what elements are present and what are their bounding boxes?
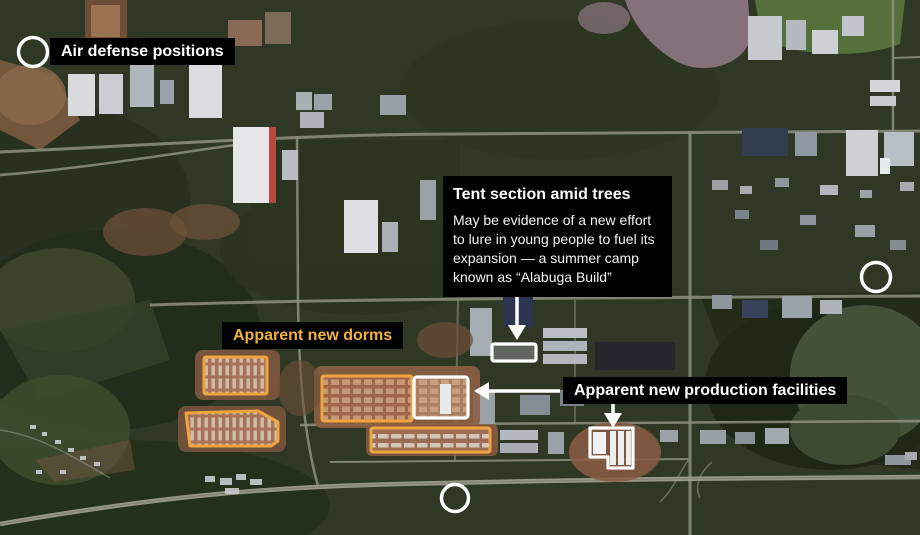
- dorm-highlight-4: [371, 428, 490, 452]
- dorm-highlight-white: [414, 377, 468, 418]
- tent-section-title: Tent section amid trees: [453, 184, 662, 205]
- production-label: Apparent new production facilities: [563, 377, 847, 404]
- dorms-label: Apparent new dorms: [222, 322, 403, 349]
- tent-section-body-line-4: known as “Alabuga Build”: [453, 268, 662, 287]
- tent-section-highlight: [492, 344, 536, 361]
- tent-section-callout: Tent section amid trees May be evidence …: [443, 176, 672, 297]
- annotated-satellite-graphic: Air defense positions Tent section amid …: [0, 0, 920, 535]
- dorm-highlight-3: [322, 376, 412, 421]
- dorm-highlight-1: [204, 357, 267, 394]
- dorm-highlight-2: [186, 411, 278, 446]
- tent-section-body-line-2: to lure in young people to fuel its: [453, 230, 662, 249]
- tent-section-body-line-1: May be evidence of a new effort: [453, 211, 662, 230]
- air-defense-label: Air defense positions: [50, 38, 235, 65]
- tent-section-body-line-3: expansion — a summer camp: [453, 249, 662, 268]
